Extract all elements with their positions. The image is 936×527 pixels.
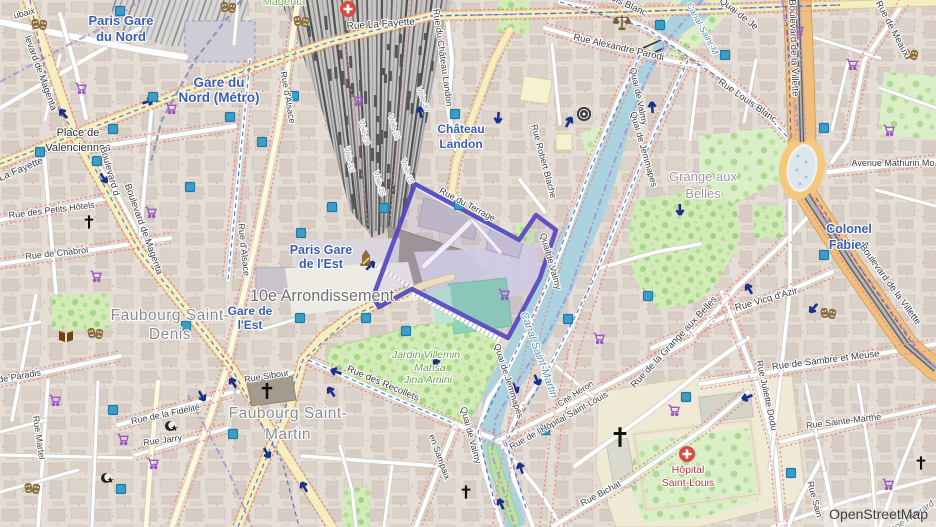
svg-text:10e Arrondissement: 10e Arrondissement: [250, 287, 394, 305]
svg-text:Gare du: Gare du: [193, 75, 244, 90]
svg-text:Avenue Mathurin Mo: Avenue Mathurin Mo: [852, 158, 935, 168]
svg-text:Jardin Villemin: Jardin Villemin: [391, 349, 460, 361]
svg-text:de l'Est: de l'Est: [299, 257, 344, 271]
svg-text:Paris Gare: Paris Gare: [88, 13, 153, 28]
svg-text:Jina Amini: Jina Amini: [403, 374, 453, 386]
svg-text:Faubourg Saint-: Faubourg Saint-: [111, 307, 230, 324]
svg-text:l'Est: l'Est: [238, 318, 263, 332]
svg-text:Place de: Place de: [57, 127, 100, 139]
svg-text:Magenta: Magenta: [263, 0, 307, 8]
svg-text:Château: Château: [437, 122, 484, 136]
svg-text:Belles: Belles: [685, 186, 721, 201]
svg-text:Grange aux: Grange aux: [669, 169, 737, 184]
svg-text:Saint-Louis: Saint-Louis: [662, 477, 715, 489]
svg-text:Hôpital: Hôpital: [672, 464, 705, 476]
svg-text:OpenStreetMap: OpenStreetMap: [829, 506, 928, 522]
svg-text:du Nord: du Nord: [96, 29, 146, 44]
svg-text:Nord (Métro): Nord (Métro): [179, 90, 260, 105]
svg-text:Gare de: Gare de: [228, 304, 273, 318]
svg-text:Landon: Landon: [439, 137, 482, 151]
svg-text:Paris Gare: Paris Gare: [290, 243, 353, 257]
svg-text:Martin: Martin: [265, 426, 311, 443]
svg-text:Faubourg Saint-: Faubourg Saint-: [229, 405, 348, 422]
svg-text:Mahsa: Mahsa: [414, 362, 446, 374]
svg-text:Denis: Denis: [149, 326, 191, 343]
svg-text:Colonel: Colonel: [826, 222, 872, 236]
